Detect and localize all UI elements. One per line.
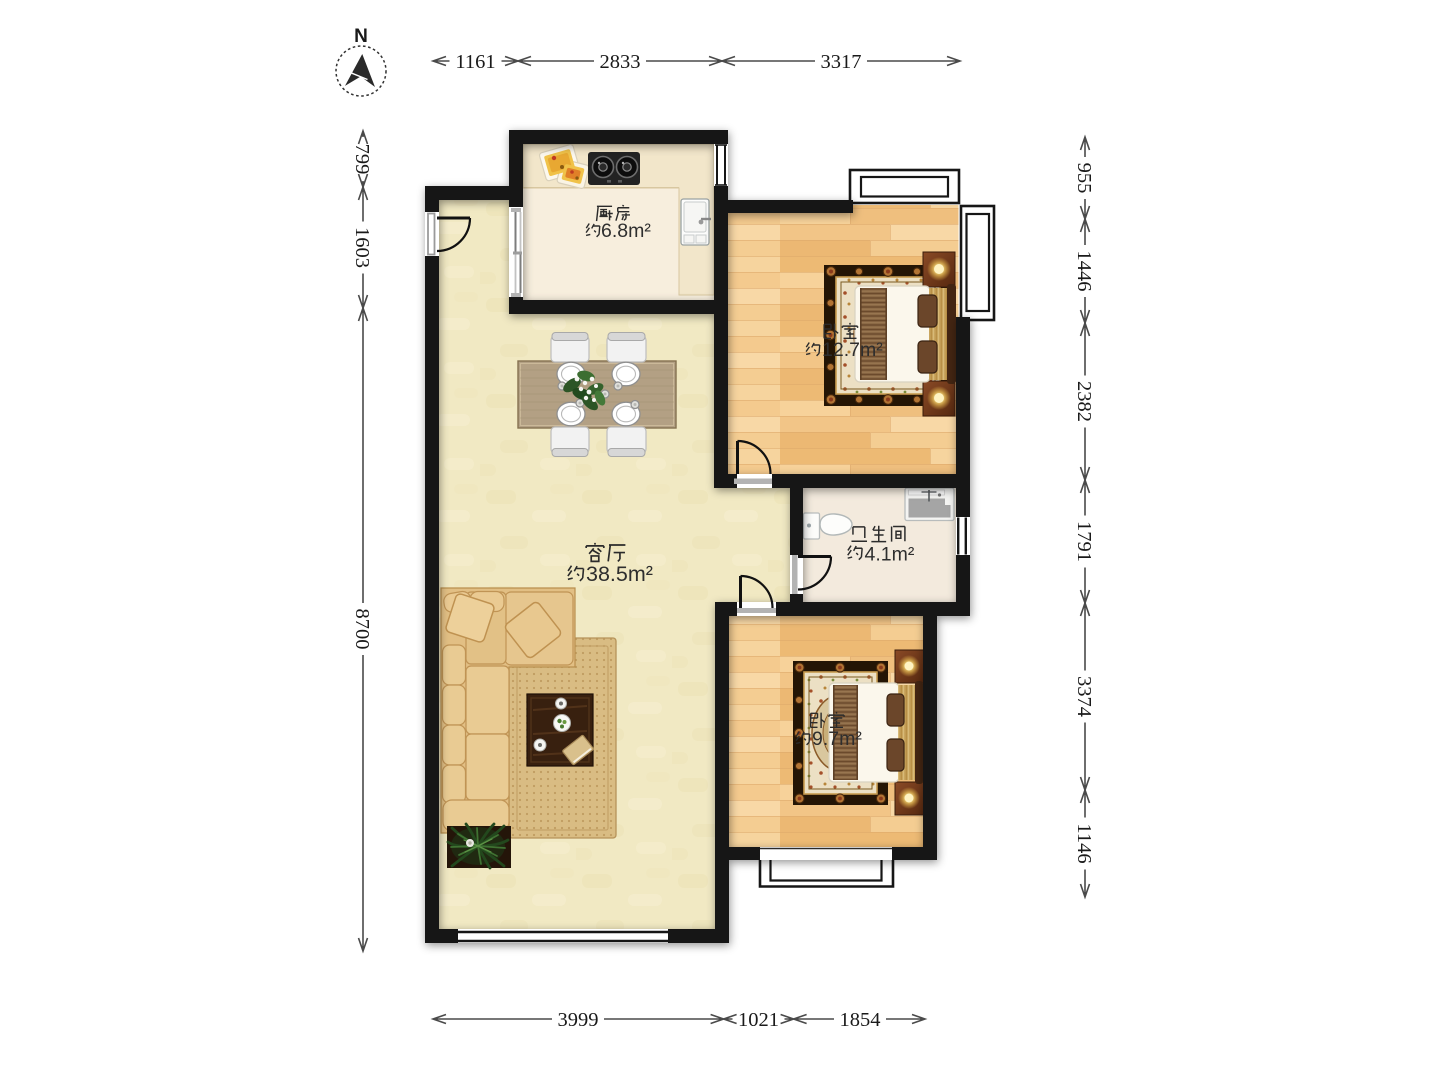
svg-text:1146: 1146: [1073, 823, 1095, 863]
svg-text:12.7m²: 12.7m²: [822, 339, 883, 361]
svg-text:955: 955: [1073, 163, 1095, 194]
svg-text:1603: 1603: [351, 227, 373, 268]
svg-text:1446: 1446: [1073, 251, 1095, 292]
svg-text:2833: 2833: [600, 51, 641, 73]
svg-text:8700: 8700: [351, 609, 373, 650]
svg-text:3317: 3317: [821, 51, 862, 73]
svg-text:799: 799: [351, 144, 373, 175]
svg-text:3999: 3999: [558, 1009, 599, 1031]
svg-text:9.7m²: 9.7m²: [812, 728, 862, 750]
svg-text:6.8m²: 6.8m²: [601, 220, 651, 242]
svg-text:4.1m²: 4.1m²: [865, 544, 915, 566]
svg-text:2382: 2382: [1073, 381, 1095, 422]
svg-text:3374: 3374: [1073, 676, 1095, 717]
svg-text:1791: 1791: [1073, 521, 1095, 562]
svg-text:1854: 1854: [840, 1009, 881, 1031]
svg-text:1021: 1021: [738, 1009, 779, 1031]
svg-text:38.5m²: 38.5m²: [586, 562, 653, 586]
svg-text:N: N: [354, 26, 368, 47]
svg-text:1161: 1161: [455, 51, 495, 73]
